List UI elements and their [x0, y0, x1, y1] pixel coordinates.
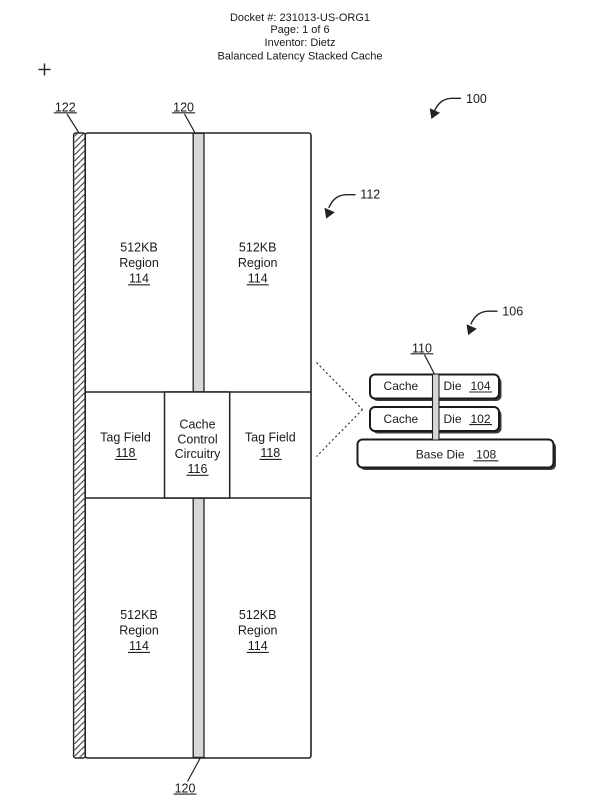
svg-text:114: 114 [129, 272, 149, 286]
svg-text:512KB: 512KB [120, 608, 158, 622]
svg-text:112: 112 [360, 188, 380, 202]
svg-text:118: 118 [260, 446, 280, 460]
svg-text:108: 108 [476, 448, 496, 462]
svg-text:118: 118 [116, 446, 136, 460]
svg-text:Region: Region [238, 624, 278, 638]
svg-text:Die: Die [444, 412, 462, 426]
svg-text:Region: Region [119, 256, 159, 270]
svg-text:100: 100 [466, 92, 487, 106]
svg-text:Docket #: 231013-US-ORG1: Docket #: 231013-US-ORG1 [230, 12, 370, 24]
svg-text:Page: 1 of 6: Page: 1 of 6 [270, 24, 329, 36]
svg-text:120: 120 [175, 782, 196, 796]
svg-text:116: 116 [188, 462, 208, 476]
svg-text:Inventor: Dietz: Inventor: Dietz [265, 37, 336, 49]
svg-text:Control: Control [177, 433, 217, 447]
svg-text:Balanced Latency Stacked Cache: Balanced Latency Stacked Cache [217, 50, 382, 62]
svg-text:Tag Field: Tag Field [245, 431, 296, 445]
svg-text:114: 114 [129, 639, 149, 653]
svg-text:Base Die: Base Die [416, 448, 465, 462]
svg-text:Cache: Cache [179, 417, 215, 431]
svg-text:110: 110 [412, 341, 432, 355]
svg-text:114: 114 [248, 272, 268, 286]
svg-text:102: 102 [470, 412, 490, 426]
svg-text:Tag Field: Tag Field [100, 431, 151, 445]
svg-text:104: 104 [470, 379, 490, 393]
svg-text:512KB: 512KB [239, 608, 277, 622]
svg-text:Region: Region [238, 256, 278, 270]
svg-text:Cache: Cache [384, 412, 419, 426]
svg-text:Die: Die [444, 379, 462, 393]
svg-text:106: 106 [502, 305, 523, 319]
svg-text:Circuitry: Circuitry [175, 447, 222, 461]
svg-text:512KB: 512KB [120, 241, 158, 255]
svg-text:512KB: 512KB [239, 241, 277, 255]
svg-text:Cache: Cache [384, 379, 419, 393]
svg-text:114: 114 [248, 639, 268, 653]
svg-text:Region: Region [119, 624, 159, 638]
